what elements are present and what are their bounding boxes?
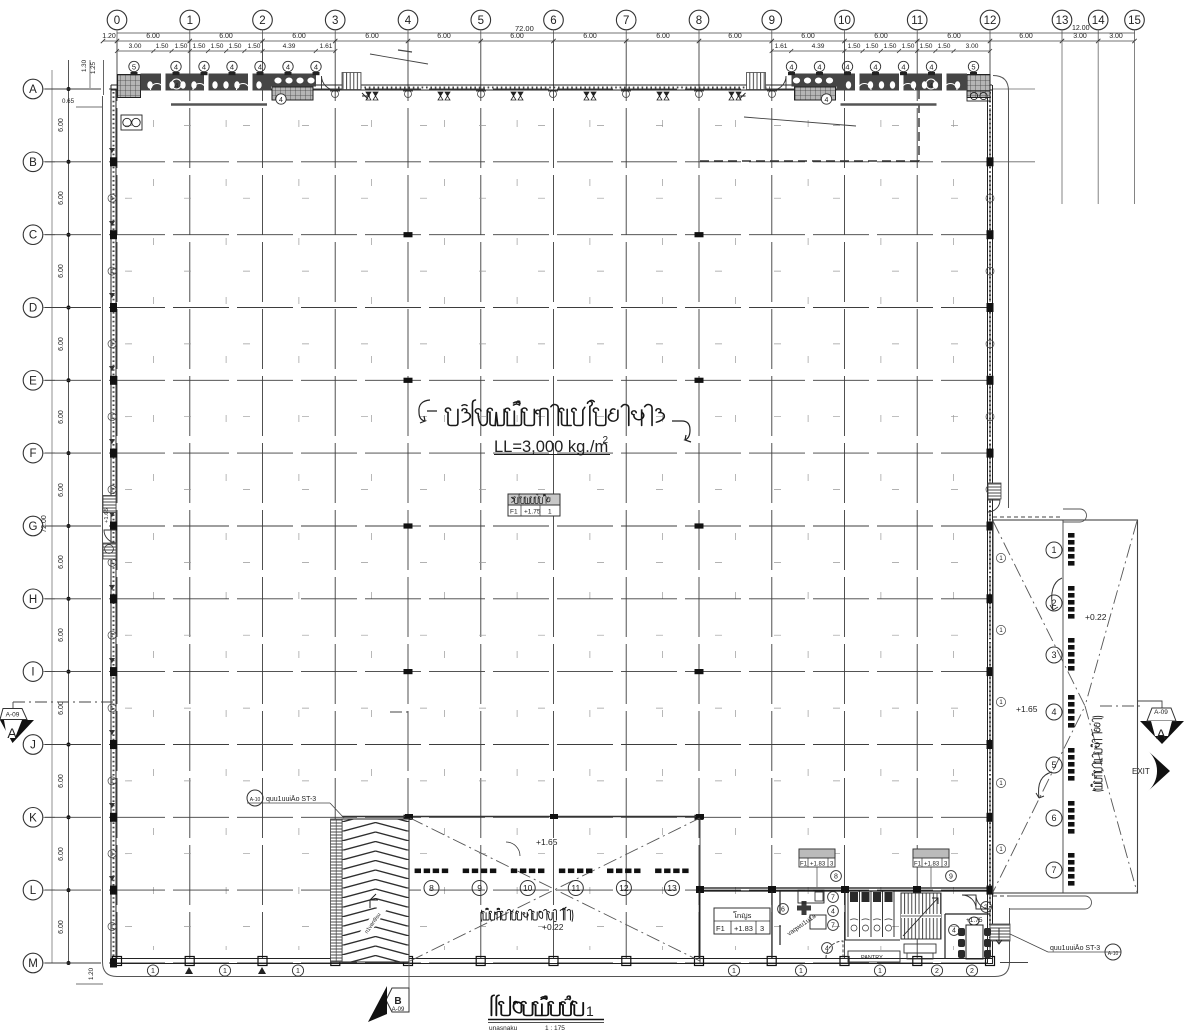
svg-text:PANTRY: PANTRY <box>861 955 883 961</box>
svg-text:1.50: 1.50 <box>902 43 915 50</box>
svg-text:+1.75: +1.75 <box>966 917 983 924</box>
svg-text:A-10: A-10 <box>250 797 261 803</box>
svg-text:4: 4 <box>817 62 821 71</box>
svg-text:6.00: 6.00 <box>58 118 65 132</box>
svg-text:1: 1 <box>1051 545 1056 555</box>
svg-text:1.50: 1.50 <box>866 43 879 50</box>
svg-text:G: G <box>29 521 38 533</box>
svg-text:6: 6 <box>550 15 556 27</box>
svg-text:6.00: 6.00 <box>58 410 65 424</box>
svg-text:6.00: 6.00 <box>58 701 65 715</box>
svg-text:6.00: 6.00 <box>728 33 742 40</box>
svg-text:5: 5 <box>132 62 136 71</box>
svg-text:1.61: 1.61 <box>775 43 788 50</box>
svg-text:4: 4 <box>952 928 956 935</box>
svg-text:6.00: 6.00 <box>58 628 65 642</box>
svg-text:4: 4 <box>825 946 829 953</box>
svg-text:1.50: 1.50 <box>193 43 206 50</box>
svg-text:4: 4 <box>873 62 877 71</box>
svg-text:6.00: 6.00 <box>437 33 451 40</box>
svg-text:6.00: 6.00 <box>292 33 306 40</box>
svg-text:15: 15 <box>1128 15 1141 27</box>
svg-text:1: 1 <box>296 968 300 975</box>
svg-text:7: 7 <box>831 895 835 902</box>
svg-text:1: 1 <box>799 968 803 975</box>
svg-text:1: 1 <box>111 196 114 202</box>
svg-text:A-09: A-09 <box>392 1007 405 1013</box>
svg-text:8: 8 <box>429 883 434 893</box>
svg-text:4: 4 <box>286 62 290 71</box>
svg-text:A: A <box>7 725 17 741</box>
svg-text:1 : 175: 1 : 175 <box>545 1025 565 1031</box>
svg-text:1: 1 <box>111 415 114 421</box>
svg-text:6.00: 6.00 <box>58 337 65 351</box>
svg-text:12: 12 <box>984 15 997 27</box>
svg-text:+0.22: +0.22 <box>1085 612 1107 622</box>
svg-text:72.00: 72.00 <box>41 515 48 533</box>
svg-text:โnญs: โnญs <box>733 911 752 920</box>
svg-text:3: 3 <box>332 15 338 27</box>
svg-text:8: 8 <box>696 15 702 27</box>
svg-text:4: 4 <box>174 62 178 71</box>
svg-text:+1.65: +1.65 <box>1016 704 1038 714</box>
svg-text:1: 1 <box>111 706 114 712</box>
svg-text:4: 4 <box>845 62 849 71</box>
svg-text:8: 8 <box>834 874 838 881</box>
svg-text:6.00: 6.00 <box>219 33 233 40</box>
svg-text:0.65: 0.65 <box>62 98 75 105</box>
svg-text:A: A <box>1156 726 1166 742</box>
svg-text:6.00: 6.00 <box>146 33 160 40</box>
svg-text:1.20: 1.20 <box>88 967 95 980</box>
svg-text:1: 1 <box>111 852 114 858</box>
svg-text:1.20: 1.20 <box>102 33 116 40</box>
svg-text:2: 2 <box>603 435 609 446</box>
svg-text:6.00: 6.00 <box>1019 33 1033 40</box>
svg-text:6.00: 6.00 <box>58 483 65 497</box>
svg-text:6.00: 6.00 <box>58 191 65 205</box>
svg-text:+1.65: +1.65 <box>104 508 110 523</box>
svg-text:K: K <box>29 812 37 824</box>
svg-text:4: 4 <box>825 97 829 104</box>
svg-text:4: 4 <box>405 15 412 27</box>
svg-text:4: 4 <box>258 62 262 71</box>
svg-text:1.30: 1.30 <box>81 59 88 72</box>
svg-text:LL=3,000 kg./m: LL=3,000 kg./m <box>494 438 608 456</box>
svg-text:+0.22: +0.22 <box>542 922 564 932</box>
svg-text:+1.83: +1.83 <box>734 924 753 933</box>
svg-text:1: 1 <box>548 509 552 516</box>
svg-text:2: 2 <box>970 968 974 975</box>
svg-text:1: 1 <box>151 968 155 975</box>
svg-text:14: 14 <box>1092 15 1105 27</box>
svg-text:4: 4 <box>202 62 206 71</box>
svg-text:4: 4 <box>279 97 283 104</box>
svg-text:1.50: 1.50 <box>156 43 169 50</box>
svg-text:unasnaku: unasnaku <box>489 1025 518 1031</box>
svg-text:M: M <box>28 958 38 970</box>
svg-text:5: 5 <box>971 62 975 71</box>
svg-text:11: 11 <box>571 883 580 893</box>
svg-text:EXIT: EXIT <box>1132 767 1150 776</box>
svg-text:2: 2 <box>259 15 265 27</box>
svg-text:6: 6 <box>781 907 785 914</box>
svg-text:L: L <box>30 885 37 897</box>
svg-text:4: 4 <box>230 62 234 71</box>
svg-text:4: 4 <box>314 62 318 71</box>
svg-text:5: 5 <box>1051 760 1056 770</box>
svg-text:1.50: 1.50 <box>920 43 933 50</box>
svg-text:B: B <box>394 996 401 1007</box>
svg-text:1: 1 <box>187 15 193 27</box>
svg-text:0: 0 <box>114 15 120 27</box>
svg-text:4: 4 <box>929 62 933 71</box>
svg-text:9: 9 <box>949 874 953 881</box>
svg-text:1: 1 <box>111 560 114 566</box>
svg-text:I: I <box>31 667 34 679</box>
svg-text:1.50: 1.50 <box>938 43 951 50</box>
svg-text:B: B <box>29 157 37 169</box>
svg-text:13: 13 <box>1056 15 1069 27</box>
svg-text:2: 2 <box>935 968 939 975</box>
svg-text:1.50: 1.50 <box>211 43 224 50</box>
svg-text:1: 1 <box>878 968 882 975</box>
svg-text:F1: F1 <box>510 509 518 516</box>
svg-text:1.50: 1.50 <box>884 43 897 50</box>
svg-text:F1: F1 <box>914 862 922 868</box>
svg-text:1.50: 1.50 <box>229 43 242 50</box>
svg-text:1.50: 1.50 <box>175 43 188 50</box>
svg-text:3.00: 3.00 <box>129 43 142 50</box>
svg-text:11: 11 <box>911 15 923 27</box>
svg-text:6.00: 6.00 <box>583 33 597 40</box>
svg-text:6.00: 6.00 <box>58 847 65 861</box>
svg-text:6.00: 6.00 <box>365 33 379 40</box>
svg-text:F1: F1 <box>800 862 808 868</box>
svg-text:1.61: 1.61 <box>320 43 333 50</box>
svg-text:13: 13 <box>667 883 677 893</box>
svg-text:6: 6 <box>1051 813 1056 823</box>
svg-text:F1: F1 <box>716 924 725 933</box>
svg-text:3: 3 <box>1051 650 1056 660</box>
svg-text:1: 1 <box>111 779 114 785</box>
svg-text:4: 4 <box>789 62 793 71</box>
svg-text:4: 4 <box>175 83 179 90</box>
svg-text:+1.75: +1.75 <box>524 509 541 516</box>
svg-text:12: 12 <box>619 883 629 893</box>
svg-text:1: 1 <box>223 968 227 975</box>
svg-text:+1.65: +1.65 <box>536 837 558 847</box>
svg-text:1: 1 <box>111 487 114 493</box>
svg-text:3.00: 3.00 <box>966 43 979 50</box>
svg-text:A-09: A-09 <box>6 712 20 719</box>
svg-text:7: 7 <box>623 15 629 27</box>
svg-text:9: 9 <box>477 883 482 893</box>
svg-text:4: 4 <box>831 909 835 916</box>
svg-text:12.00: 12.00 <box>1072 25 1090 32</box>
svg-text:72.00: 72.00 <box>515 24 534 33</box>
svg-text:1: 1 <box>732 968 736 975</box>
svg-text:4.39: 4.39 <box>283 43 296 50</box>
svg-text:6.00: 6.00 <box>58 774 65 788</box>
svg-text:1: 1 <box>586 1003 594 1019</box>
svg-text:C: C <box>29 230 37 242</box>
svg-text:4.39: 4.39 <box>812 43 825 50</box>
svg-text:3.00: 3.00 <box>1073 33 1087 40</box>
svg-text:6.00: 6.00 <box>58 264 65 278</box>
svg-text:10: 10 <box>838 15 851 27</box>
svg-text:2: 2 <box>984 905 988 912</box>
svg-text:1: 1 <box>111 342 114 348</box>
svg-text:6.00: 6.00 <box>58 920 65 934</box>
svg-text:6.00: 6.00 <box>510 33 524 40</box>
svg-text:5: 5 <box>478 15 484 27</box>
svg-text:6.00: 6.00 <box>58 555 65 569</box>
svg-text:4: 4 <box>929 83 933 90</box>
svg-text:quu1uuiĀo ST-3: quu1uuiĀo ST-3 <box>266 795 316 803</box>
svg-text:D: D <box>29 303 37 315</box>
svg-text:1.50: 1.50 <box>248 43 261 50</box>
svg-text:A-09: A-09 <box>1154 709 1168 716</box>
svg-text:J: J <box>30 740 36 752</box>
svg-text:6.00: 6.00 <box>947 33 961 40</box>
svg-text:6.00: 6.00 <box>656 33 670 40</box>
svg-text:3: 3 <box>760 924 764 933</box>
svg-text:1.50: 1.50 <box>848 43 861 50</box>
svg-text:A: A <box>29 84 37 96</box>
svg-text:+1.83: +1.83 <box>810 862 826 868</box>
svg-text:4: 4 <box>1051 707 1056 717</box>
svg-text:1: 1 <box>111 633 114 639</box>
svg-text:7: 7 <box>1051 865 1056 875</box>
svg-text:E: E <box>29 375 37 387</box>
svg-text:+1.83: +1.83 <box>924 862 940 868</box>
svg-text:1: 1 <box>111 924 114 930</box>
svg-text:6.00: 6.00 <box>801 33 815 40</box>
svg-text:quu1uuiĀo ST-3: quu1uuiĀo ST-3 <box>1050 944 1100 952</box>
svg-text:1: 1 <box>111 269 114 275</box>
svg-text:H: H <box>29 594 37 606</box>
svg-text:F: F <box>29 448 36 460</box>
svg-text:3.00: 3.00 <box>1109 33 1123 40</box>
svg-text:1.25: 1.25 <box>90 61 97 74</box>
svg-text:9: 9 <box>769 15 775 27</box>
svg-text:10: 10 <box>523 883 533 893</box>
svg-text:4: 4 <box>901 62 905 71</box>
svg-text:6.00: 6.00 <box>874 33 888 40</box>
svg-text:7: 7 <box>831 923 835 930</box>
